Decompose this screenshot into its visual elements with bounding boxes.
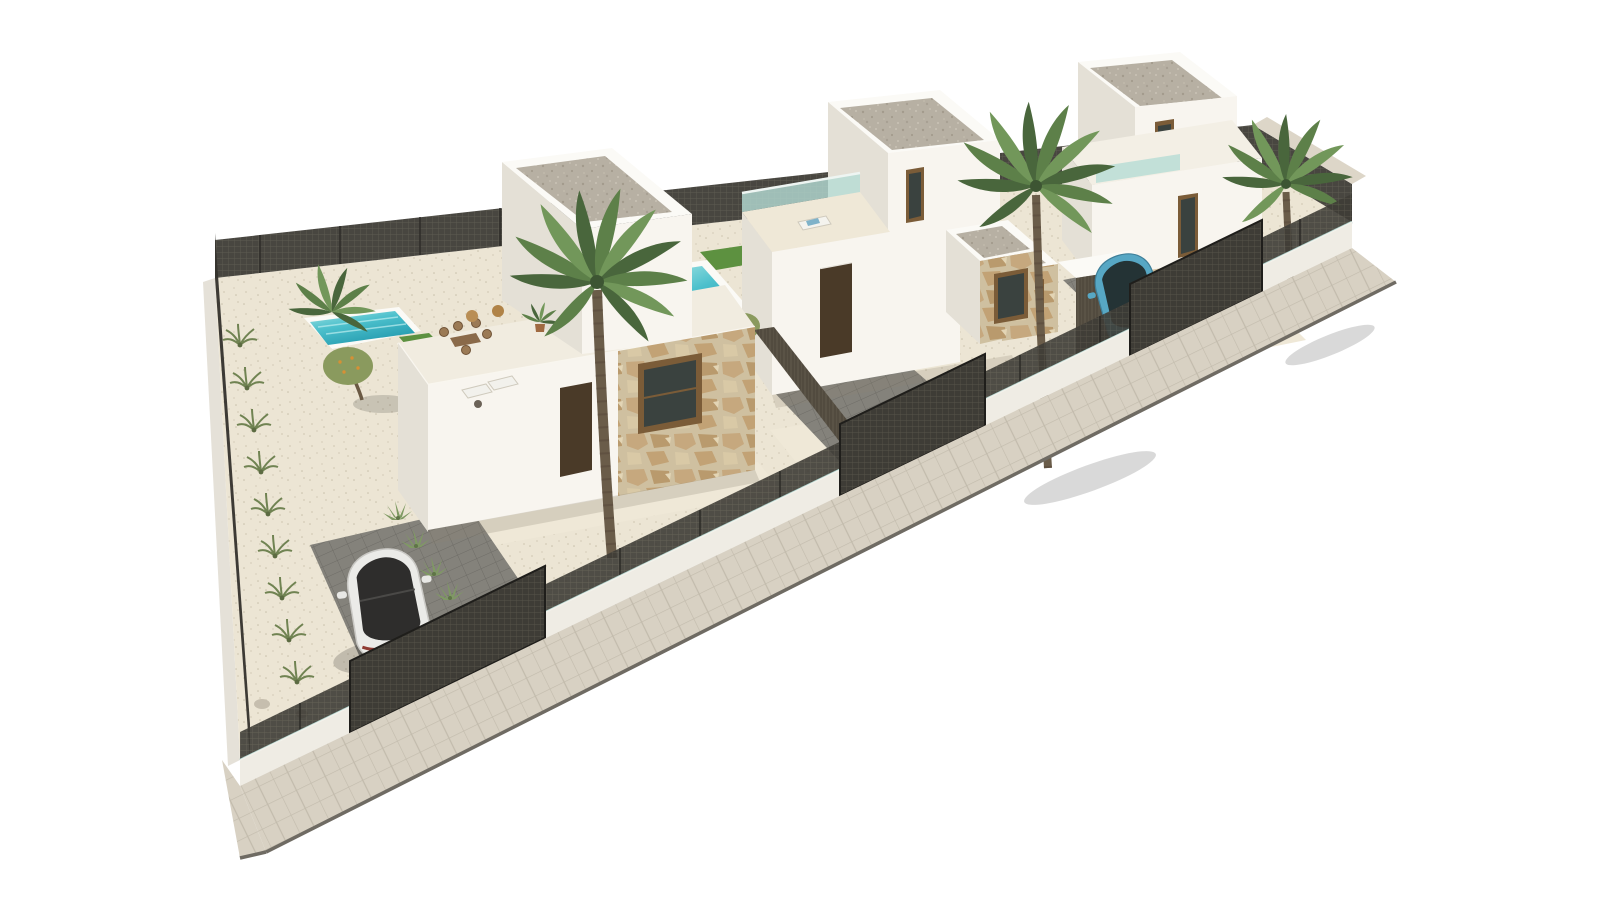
dining-chair (462, 346, 471, 355)
pouf (466, 310, 478, 322)
dining-chair (440, 328, 449, 337)
annex-window-glass (998, 273, 1024, 319)
villa-2 (728, 90, 1042, 408)
dining-chair (454, 322, 463, 331)
dining-chair (483, 330, 492, 339)
mid-window-door-glass (1181, 197, 1195, 254)
rock (254, 699, 270, 709)
architectural-render (0, 0, 1600, 900)
entrance-door (820, 262, 852, 358)
side-table (474, 400, 482, 408)
upper-window-glass (909, 172, 921, 219)
pouf (492, 305, 504, 317)
entrance-door (560, 382, 592, 477)
render-canvas: Aerial 3D render – three new-build villa… (0, 0, 1600, 900)
olive-canopy (323, 347, 373, 385)
